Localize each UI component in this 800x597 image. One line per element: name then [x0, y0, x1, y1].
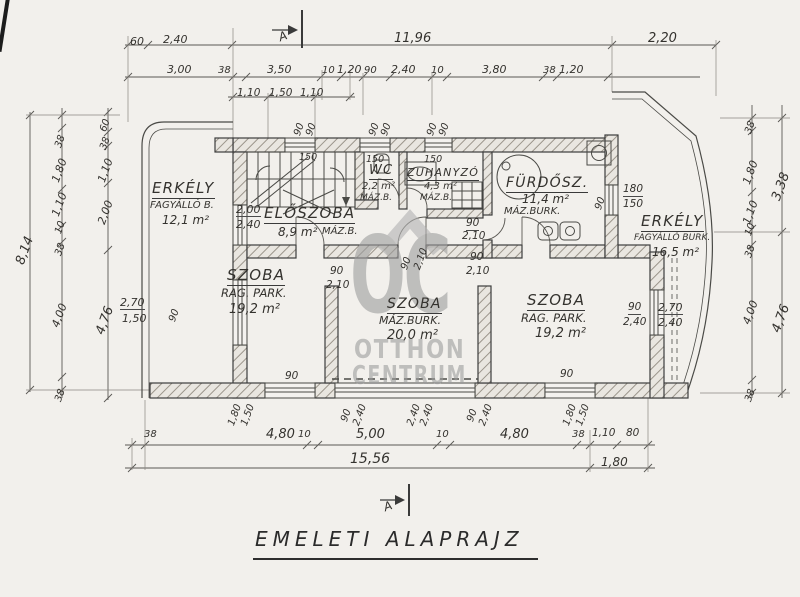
door-swings [296, 179, 550, 245]
extension-lines [26, 28, 790, 472]
bathtub [497, 155, 541, 199]
section-arrowhead-bottom [395, 495, 405, 505]
scanned-floor-plan-page: OC OTTHON CENTRUM 602,4011,962,203,00383… [0, 0, 800, 597]
section-arrowhead-top [288, 25, 298, 35]
stair-direction-arrow [342, 197, 350, 206]
shower-tray [452, 182, 482, 208]
dimension-lines [26, 41, 786, 472]
windows [233, 138, 664, 398]
double-washbasin [538, 222, 580, 240]
walls [150, 135, 688, 398]
drawing-title: EMELETI ALAPRAJZ [253, 527, 538, 560]
floor-plan-drawing [0, 0, 800, 597]
balcony-left-outline [142, 122, 233, 398]
section-marker-top [272, 10, 302, 48]
staircase [247, 152, 355, 214]
toilet [374, 154, 389, 173]
washbasin [405, 162, 436, 185]
